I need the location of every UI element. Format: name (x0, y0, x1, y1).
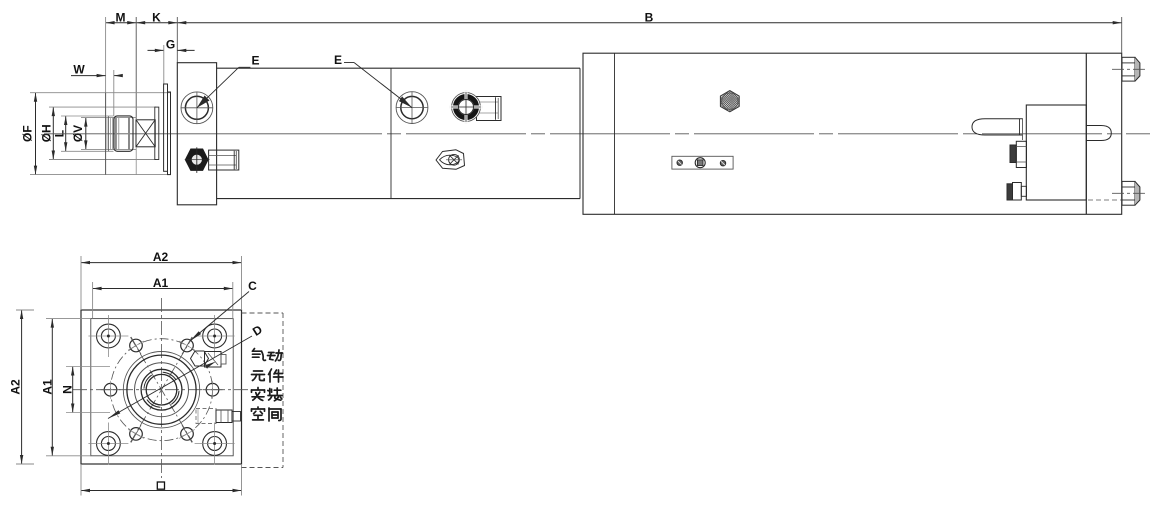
svg-text:A1: A1 (153, 276, 169, 290)
svg-text:D: D (250, 322, 265, 339)
svg-text:A1: A1 (41, 379, 55, 395)
svg-text:A2: A2 (8, 379, 22, 395)
svg-text:A2: A2 (153, 250, 169, 264)
svg-text:N: N (61, 385, 75, 394)
svg-text:C: C (248, 279, 257, 293)
svg-text:M: M (116, 10, 126, 24)
svg-text:ØF: ØF (21, 125, 35, 142)
svg-text:E: E (334, 53, 342, 67)
svg-text:ØH: ØH (39, 124, 53, 142)
svg-text:W: W (73, 63, 85, 77)
svg-text:B: B (645, 10, 654, 24)
svg-text:G: G (166, 38, 175, 52)
svg-text:E: E (251, 54, 259, 68)
svg-text:K: K (152, 10, 161, 24)
